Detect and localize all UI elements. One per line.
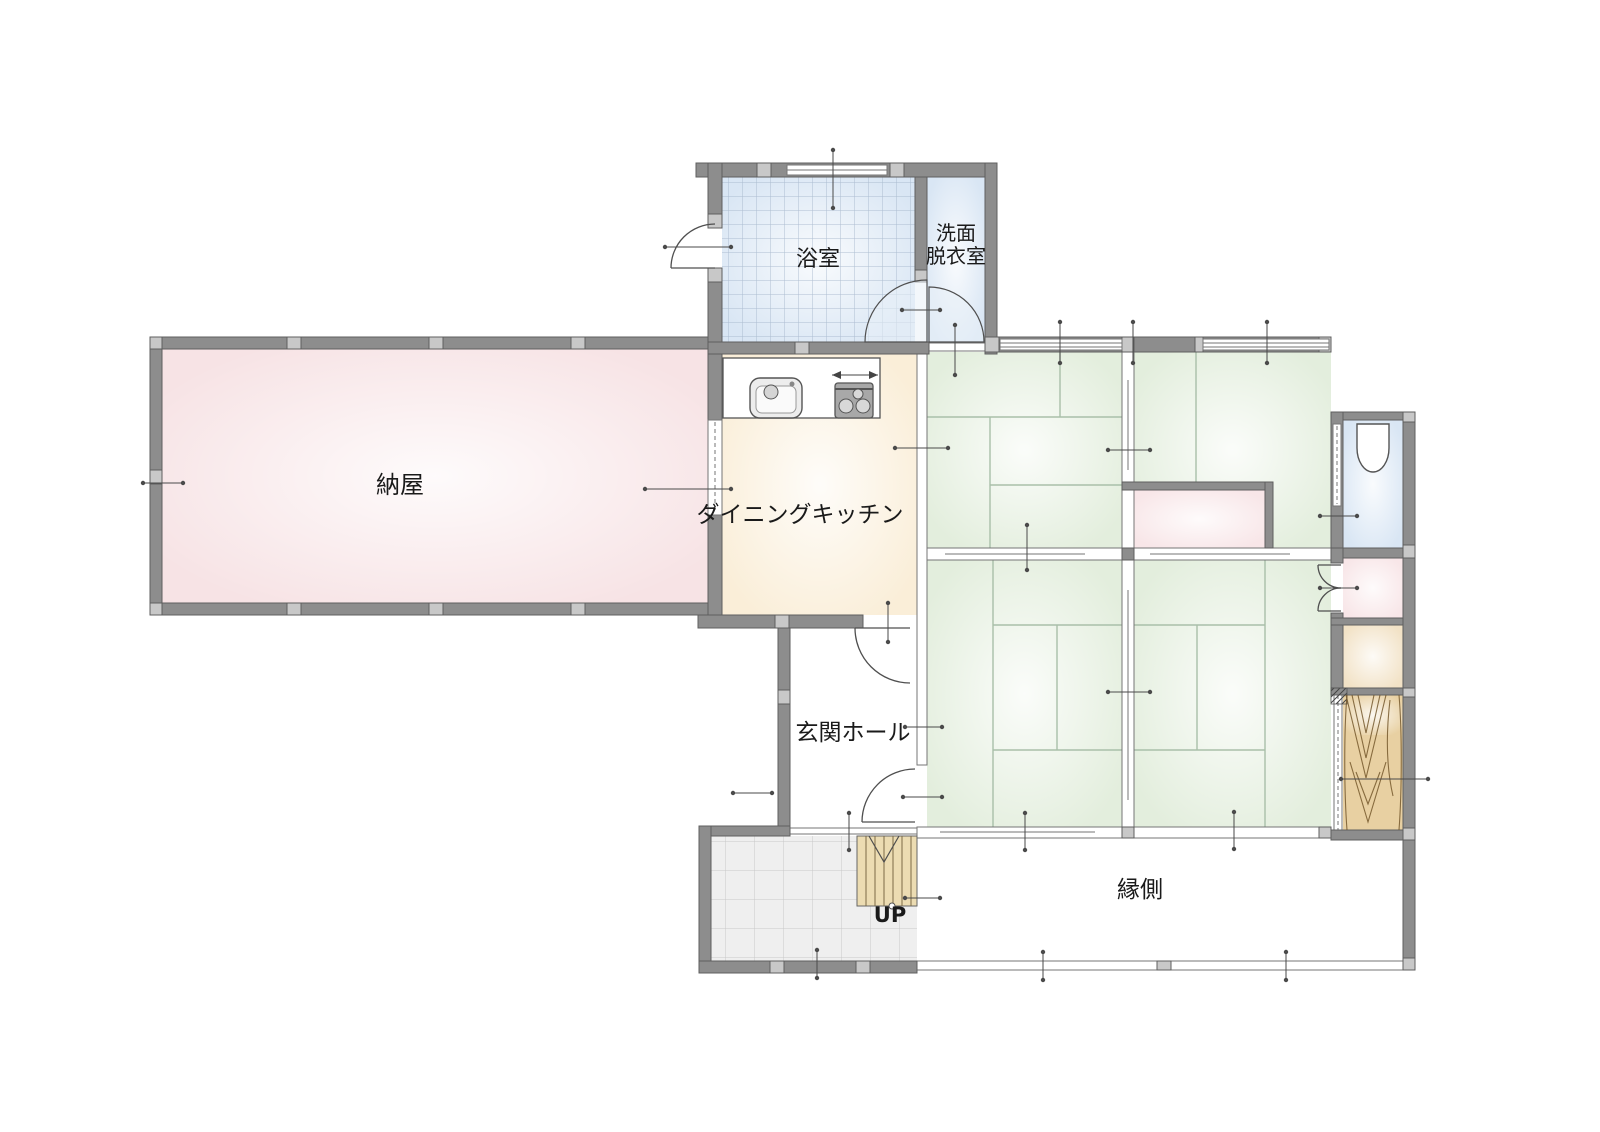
- washroom-sliding-partition: [929, 343, 985, 351]
- barn-glow: [162, 349, 708, 603]
- toilet-icon: [1357, 424, 1389, 472]
- label-bathroom: 浴室: [796, 247, 840, 272]
- kitchen-counter: [723, 358, 880, 418]
- kitchen-sink-icon: [750, 378, 802, 418]
- bathroom-exterior-door: [671, 224, 715, 268]
- closet-pink-glow: [1134, 490, 1265, 548]
- floor-plan-drawing: 浴室 洗面 脱衣室 納屋 ダイニングキッチン 玄関ホール 縁側 UP: [0, 0, 1600, 1132]
- label-washroom-line1: 洗面: [936, 221, 976, 245]
- tatami-north-window-2: [1203, 339, 1329, 350]
- tatami-sl-glow: [927, 560, 1122, 827]
- label-veranda: 縁側: [1117, 877, 1163, 903]
- room-fills: [162, 177, 1403, 961]
- gas-stove-icon: [835, 383, 873, 418]
- label-dining-kitchen: ダイニングキッチン: [697, 502, 904, 528]
- storage-beige-glow: [1343, 625, 1403, 688]
- tatami-north-window-1: [1000, 339, 1122, 350]
- tatami-sr-glow: [1134, 560, 1331, 827]
- label-stairs-up: UP: [874, 903, 906, 927]
- label-entrance-hall: 玄関ホール: [796, 720, 911, 746]
- label-washroom-line2: 脱衣室: [926, 244, 986, 268]
- label-barn: 納屋: [376, 471, 424, 499]
- floor-plan-page: 浴室 洗面 脱衣室 納屋 ダイニングキッチン 玄関ホール 縁側 UP: [0, 0, 1600, 1132]
- tatami-nl-glow: [927, 352, 1122, 548]
- hall-genkan-partition: [790, 828, 917, 834]
- tatami-west-wall: [917, 352, 927, 765]
- hatched-post-block: [1331, 688, 1347, 704]
